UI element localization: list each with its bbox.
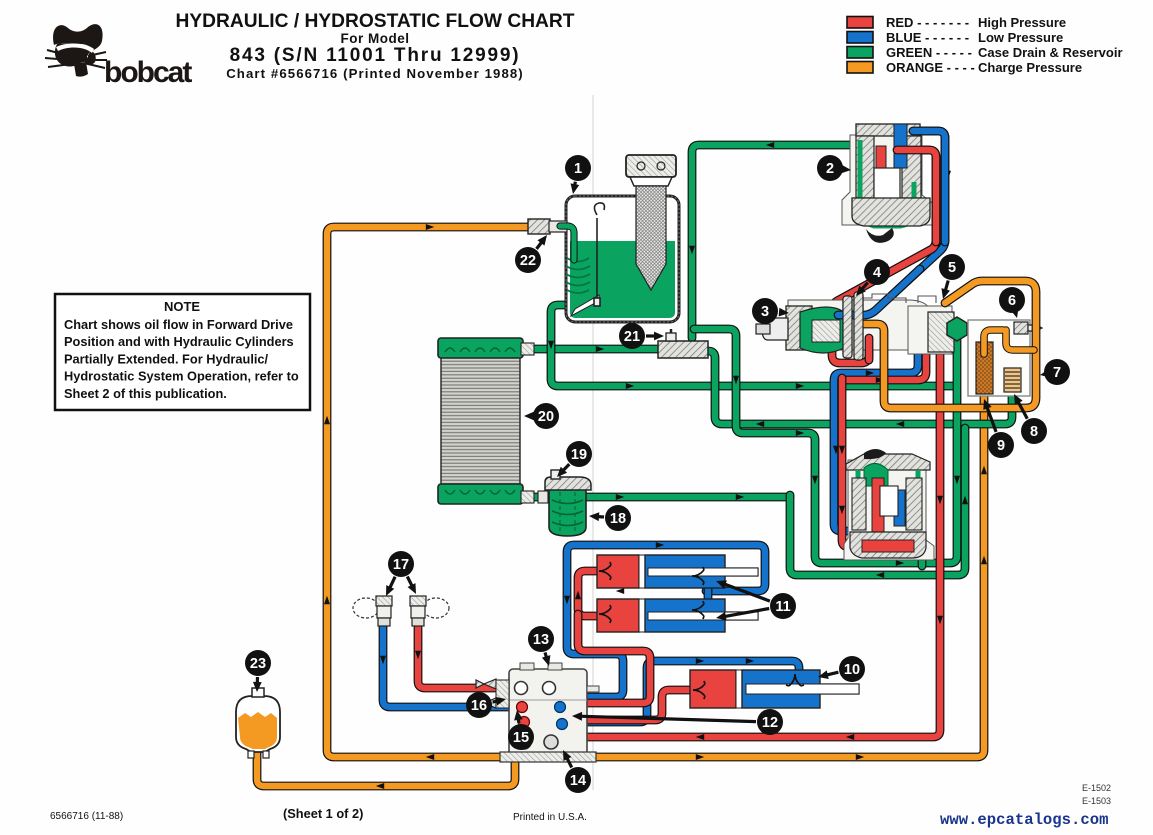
svg-text:Low Pressure: Low Pressure	[978, 30, 1063, 45]
svg-text:Sheet 2 of this publication.: Sheet 2 of this publication.	[64, 386, 227, 401]
svg-text:www.epcatalogs.com: www.epcatalogs.com	[940, 811, 1108, 829]
svg-text:843 (S/N 11001 Thru 12999): 843 (S/N 11001 Thru 12999)	[230, 45, 521, 66]
svg-text:19: 19	[571, 447, 587, 463]
svg-text:1: 1	[574, 161, 582, 177]
svg-text:E-1503: E-1503	[1082, 796, 1111, 806]
svg-text:Case Drain & Reservoir: Case Drain & Reservoir	[978, 45, 1123, 60]
svg-text:Chart #6566716 (Printed Novemb: Chart #6566716 (Printed November 1988)	[226, 66, 524, 81]
svg-text:6: 6	[1008, 293, 1016, 309]
svg-text:For Model: For Model	[341, 31, 410, 46]
svg-text:14: 14	[570, 773, 586, 789]
svg-text:11: 11	[775, 599, 790, 615]
svg-text:5: 5	[948, 260, 956, 276]
svg-text:Hydrostatic System Operation,: Hydrostatic System Operation, refer to	[64, 369, 299, 384]
svg-text:4: 4	[873, 265, 881, 281]
svg-text:22: 22	[520, 253, 536, 269]
svg-text:20: 20	[538, 409, 554, 425]
svg-text:Chart shows oil flow in Forwar: Chart shows oil flow in Forward Drive	[64, 317, 293, 332]
svg-text:NOTE: NOTE	[164, 299, 200, 314]
svg-text:High Pressure: High Pressure	[978, 15, 1066, 30]
svg-text:21: 21	[624, 329, 640, 345]
svg-text:BLUE - - - - - -: BLUE - - - - - -	[886, 30, 969, 45]
svg-text:GREEN - - - - -: GREEN - - - - -	[886, 45, 972, 60]
svg-text:13: 13	[533, 632, 549, 648]
svg-text:2: 2	[826, 161, 834, 177]
svg-text:(Sheet 1 of 2): (Sheet 1 of 2)	[283, 806, 363, 821]
svg-text:Position and with Hydraulic Cy: Position and with Hydraulic Cylinders	[64, 334, 294, 349]
svg-text:HYDRAULIC / HYDROSTATIC FLOW C: HYDRAULIC / HYDROSTATIC FLOW CHART	[176, 11, 575, 32]
svg-text:15: 15	[513, 730, 529, 746]
svg-text:E-1502: E-1502	[1082, 783, 1111, 793]
svg-text:9: 9	[997, 438, 1005, 454]
svg-text:17: 17	[393, 557, 409, 573]
svg-text:6566716 (11-88): 6566716 (11-88)	[50, 811, 123, 822]
svg-text:Charge Pressure: Charge Pressure	[978, 60, 1082, 75]
svg-text:Printed in U.S.A.: Printed in U.S.A.	[513, 812, 587, 823]
svg-text:8: 8	[1030, 424, 1038, 440]
svg-text:RED - - - - - - -: RED - - - - - - -	[886, 15, 969, 30]
svg-text:16: 16	[471, 698, 487, 714]
svg-text:10: 10	[844, 662, 860, 678]
svg-text:bobcat: bobcat	[104, 56, 192, 89]
svg-text:ORANGE - - - -: ORANGE - - - -	[886, 60, 975, 75]
svg-text:Partially Extended. For Hyd: Partially Extended. For Hydraulic/	[64, 351, 269, 366]
svg-text:7: 7	[1053, 365, 1061, 381]
svg-text:3: 3	[761, 304, 769, 320]
svg-text:23: 23	[250, 656, 266, 672]
svg-text:18: 18	[610, 511, 626, 527]
svg-text:12: 12	[762, 715, 778, 731]
